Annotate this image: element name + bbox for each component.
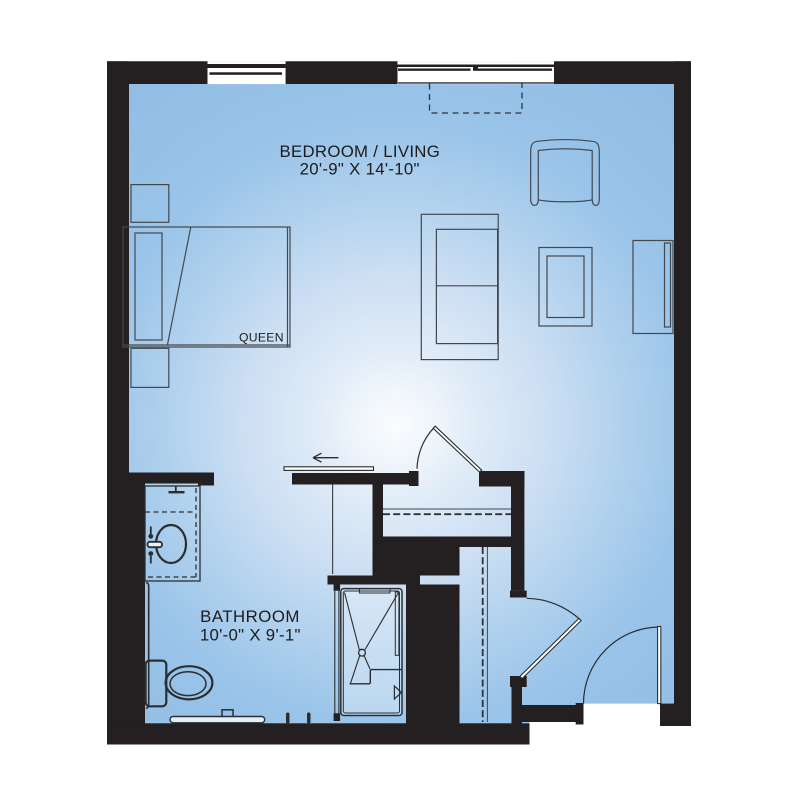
svg-text:BEDROOM / LIVING: BEDROOM / LIVING bbox=[280, 142, 441, 161]
svg-text:10'-0" X 9'-1": 10'-0" X 9'-1" bbox=[200, 626, 301, 645]
svg-text:20'-9" X 14'-10": 20'-9" X 14'-10" bbox=[300, 160, 420, 179]
svg-text:BATHROOM: BATHROOM bbox=[200, 607, 300, 626]
svg-text:QUEEN: QUEEN bbox=[239, 331, 284, 345]
